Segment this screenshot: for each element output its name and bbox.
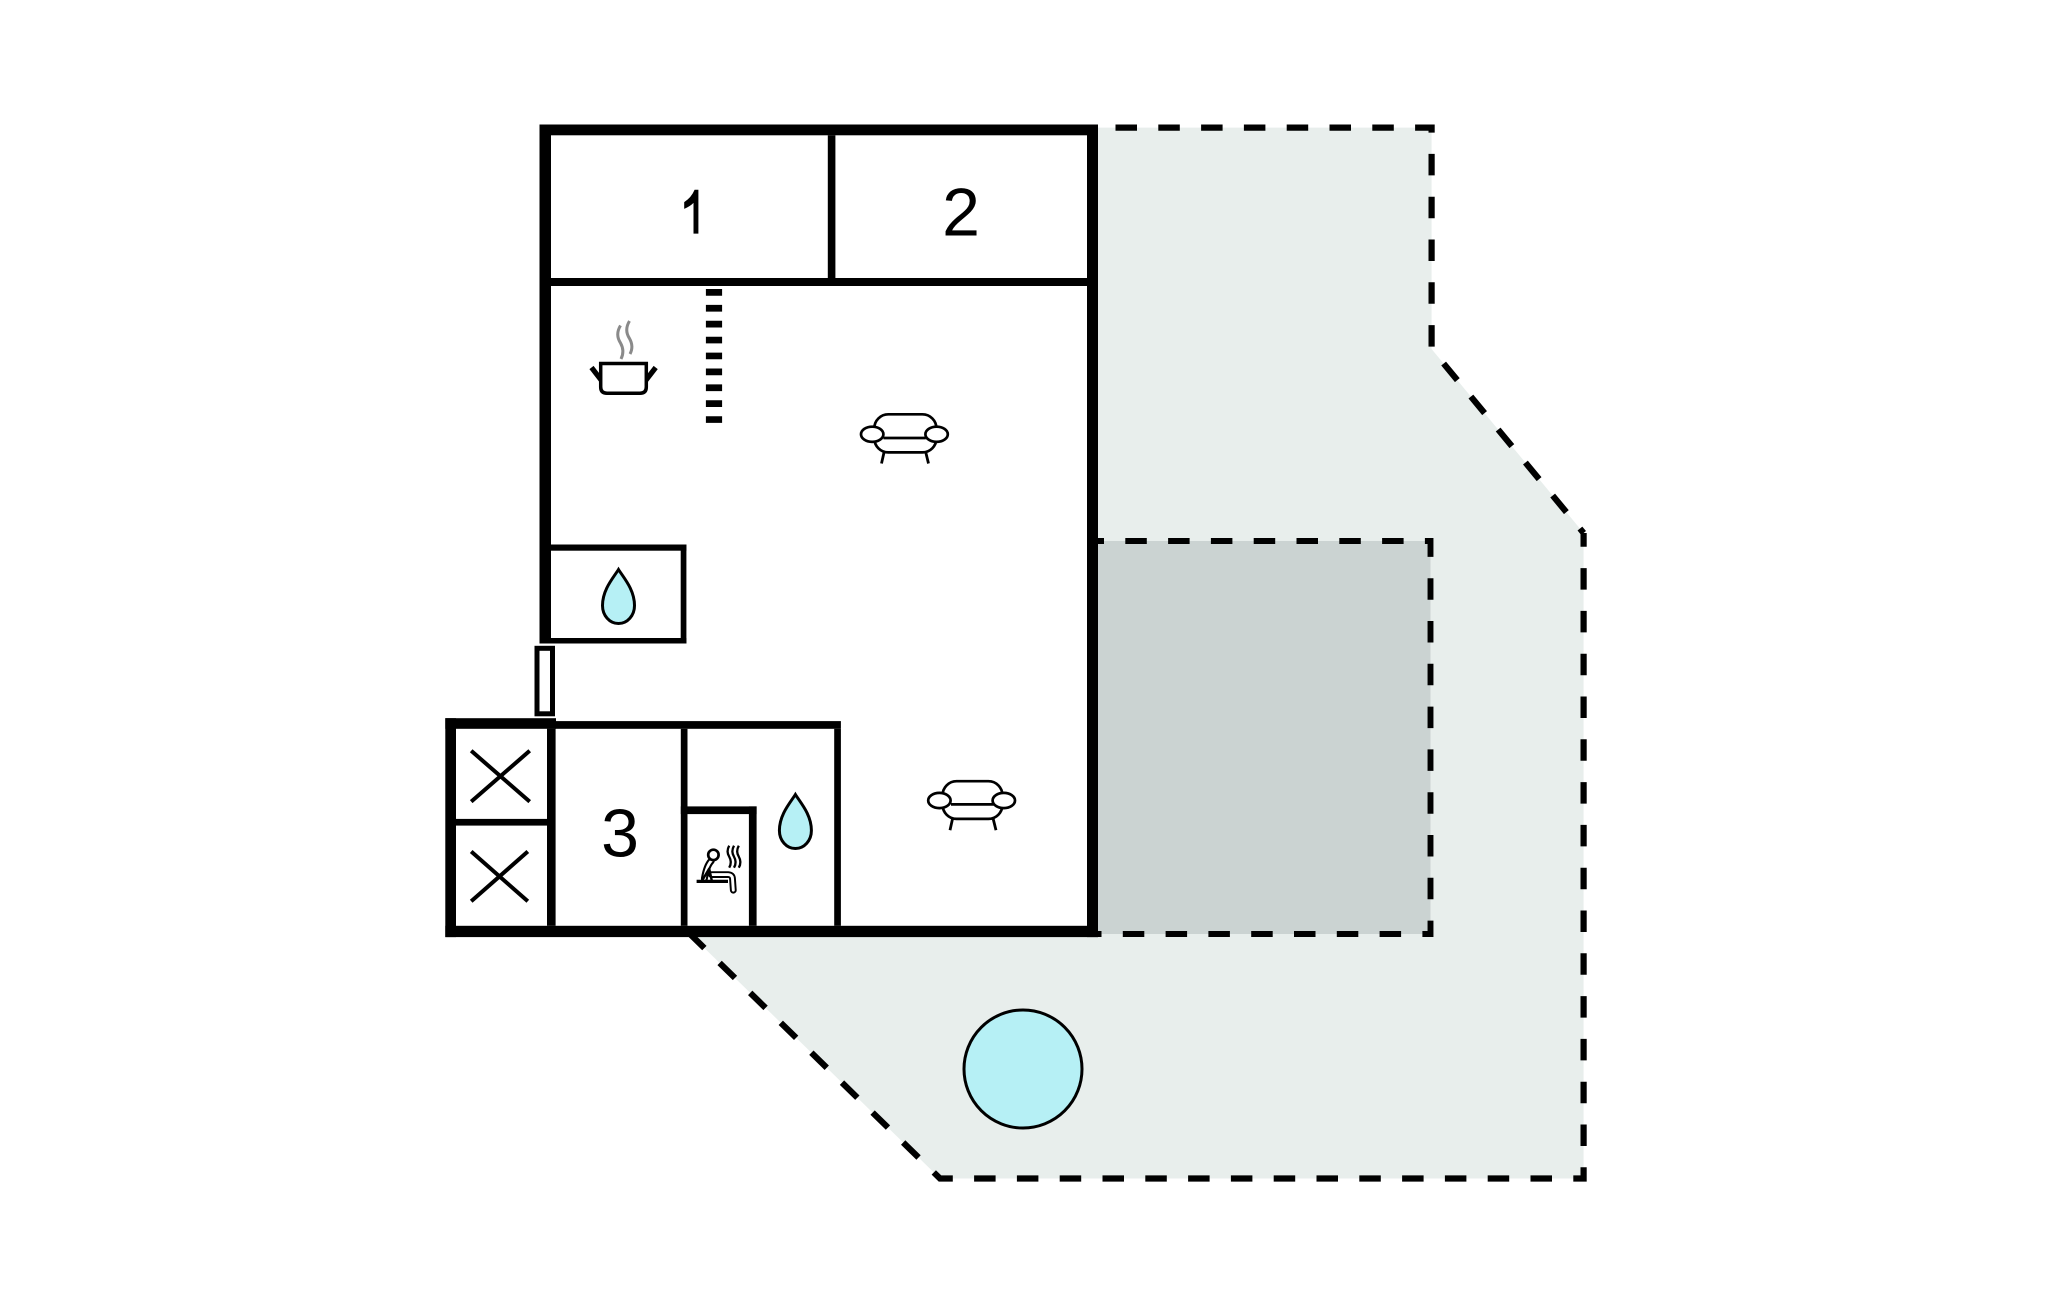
svg-text:2: 2: [942, 175, 980, 251]
svg-text:3: 3: [601, 796, 639, 872]
